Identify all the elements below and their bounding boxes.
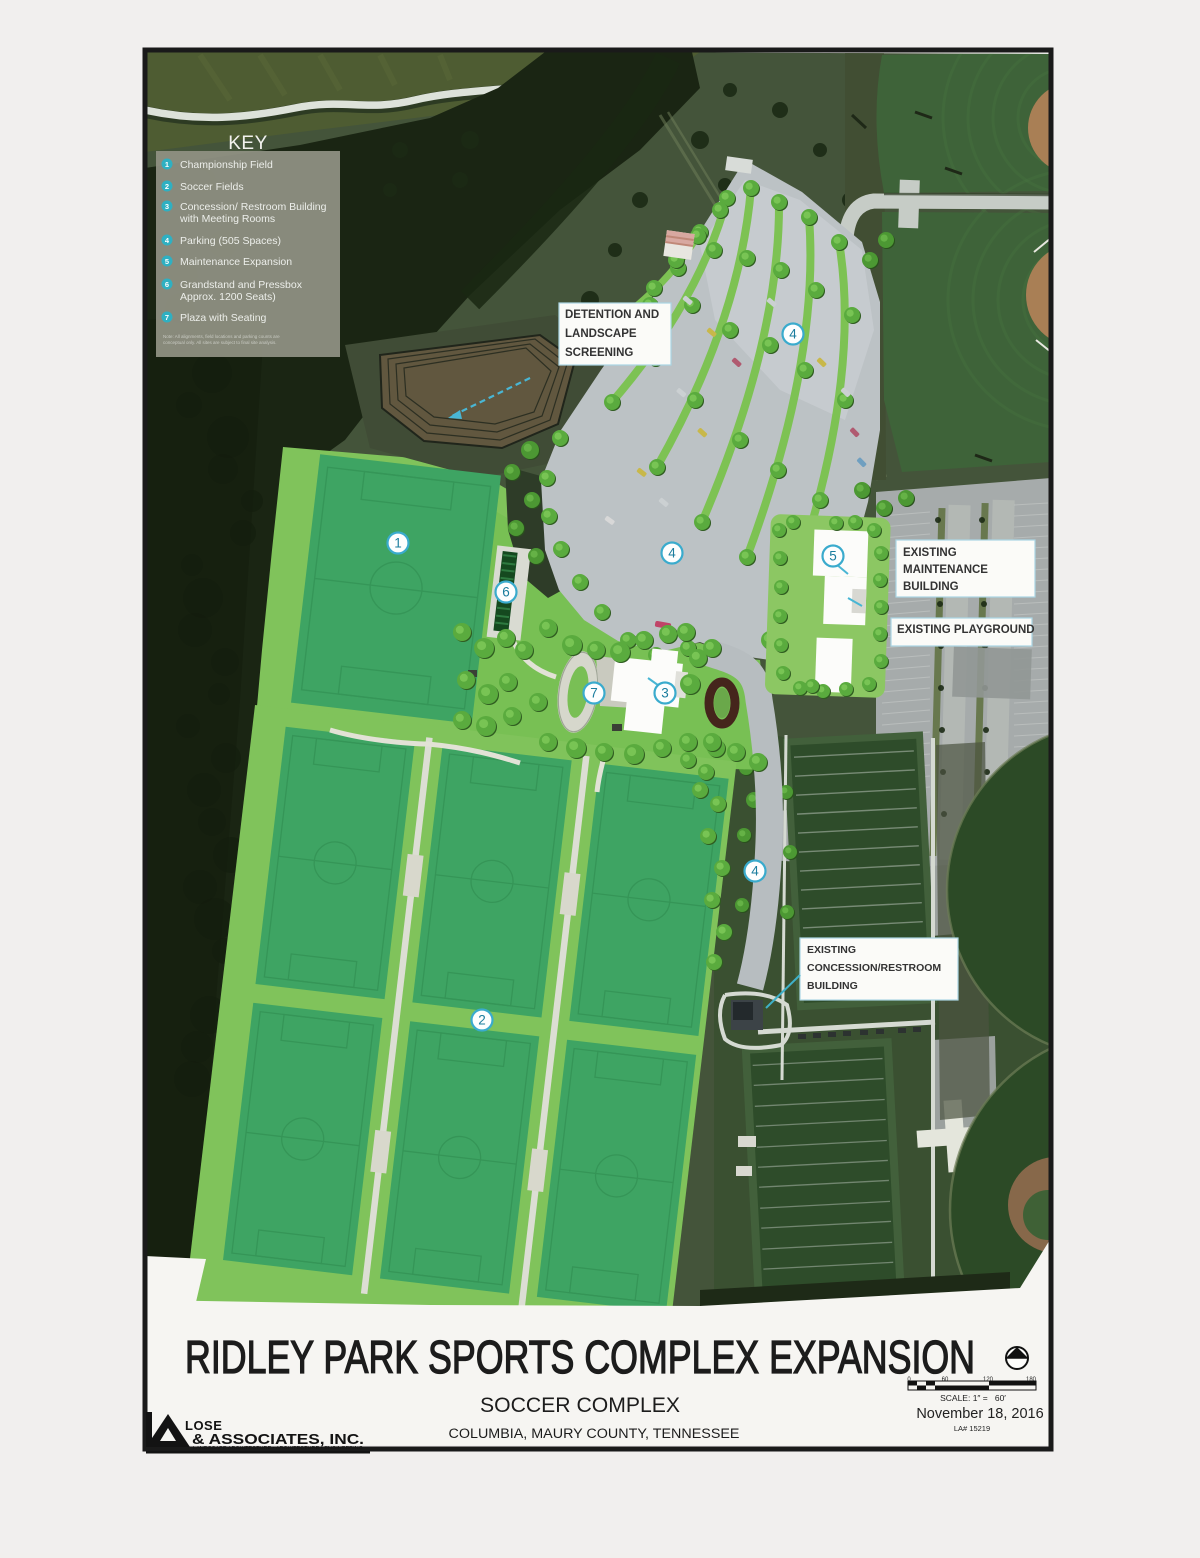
svg-text:3: 3	[661, 686, 669, 701]
svg-text:4: 4	[789, 327, 797, 342]
svg-text:Approx. 1200 Seats): Approx. 1200 Seats)	[180, 291, 276, 303]
svg-text:CONCESSION/RESTROOM: CONCESSION/RESTROOM	[807, 962, 941, 974]
svg-text:Plaza with Seating: Plaza with Seating	[180, 312, 267, 324]
svg-text:Parking (505 Spaces): Parking (505 Spaces)	[180, 235, 281, 247]
svg-text:BUILDING: BUILDING	[903, 581, 959, 593]
svg-text:Grandstand and Pressbox: Grandstand and Pressbox	[180, 279, 303, 291]
svg-text:KEY: KEY	[228, 133, 268, 154]
svg-text:Note: All alignments, field lo: Note: All alignments, field locations an…	[163, 334, 280, 339]
svg-text:120: 120	[983, 1377, 994, 1383]
svg-text:1: 1	[394, 536, 402, 551]
svg-text:5: 5	[165, 257, 169, 266]
svg-text:EXISTING: EXISTING	[807, 944, 856, 956]
svg-text:SCALE: 1″ = 60′: SCALE: 1″ = 60′	[940, 1393, 1006, 1403]
svg-text:6: 6	[502, 585, 510, 600]
svg-text:BUILDING: BUILDING	[807, 980, 858, 992]
svg-text:7: 7	[165, 313, 169, 322]
svg-text:Concession/ Restroom Building: Concession/ Restroom Building	[180, 201, 327, 213]
svg-text:COLUMBIA, MAURY COUNTY, TENNES: COLUMBIA, MAURY COUNTY, TENNESSEE	[449, 1426, 740, 1441]
svg-text:7: 7	[590, 686, 598, 701]
svg-text:conceptual only. All sites are: conceptual only. All sites are subject t…	[163, 340, 276, 345]
svg-text:60: 60	[942, 1377, 949, 1383]
svg-text:LANDSCAPE: LANDSCAPE	[565, 328, 637, 340]
svg-text:EXISTING: EXISTING	[903, 547, 957, 559]
svg-text:4: 4	[751, 864, 759, 879]
svg-text:4: 4	[668, 546, 676, 561]
svg-text:LA# 15219: LA# 15219	[954, 1424, 990, 1433]
svg-text:SCREENING: SCREENING	[565, 347, 633, 359]
svg-text:1: 1	[165, 160, 169, 169]
svg-text:November 18, 2016: November 18, 2016	[916, 1406, 1043, 1422]
svg-text:2: 2	[478, 1013, 486, 1028]
svg-text:Championship Field: Championship Field	[180, 159, 273, 171]
svg-text:180: 180	[1026, 1377, 1037, 1383]
svg-text:6: 6	[165, 280, 169, 289]
svg-text:SOCCER COMPLEX: SOCCER COMPLEX	[480, 1394, 680, 1417]
svg-text:Soccer Fields: Soccer Fields	[180, 181, 244, 193]
svg-text:with Meeting Rooms: with Meeting Rooms	[179, 213, 275, 225]
svg-text:DETENTION AND: DETENTION AND	[565, 309, 659, 321]
svg-text:Maintenance Expansion: Maintenance Expansion	[180, 256, 292, 268]
svg-text:5: 5	[829, 549, 837, 564]
svg-text:LANDSCAPE ARCHITECTURE • ARCHI: LANDSCAPE ARCHITECTURE • ARCHITECTURE • …	[193, 1445, 363, 1451]
svg-text:RIDLEY PARK SPORTS COMPLEX EXP: RIDLEY PARK SPORTS COMPLEX EXPANSION	[185, 1331, 975, 1383]
svg-text:EXISTING PLAYGROUND: EXISTING PLAYGROUND	[897, 624, 1035, 636]
svg-text:2: 2	[165, 182, 169, 191]
svg-text:MAINTENANCE: MAINTENANCE	[903, 564, 988, 576]
svg-text:3: 3	[165, 202, 169, 211]
